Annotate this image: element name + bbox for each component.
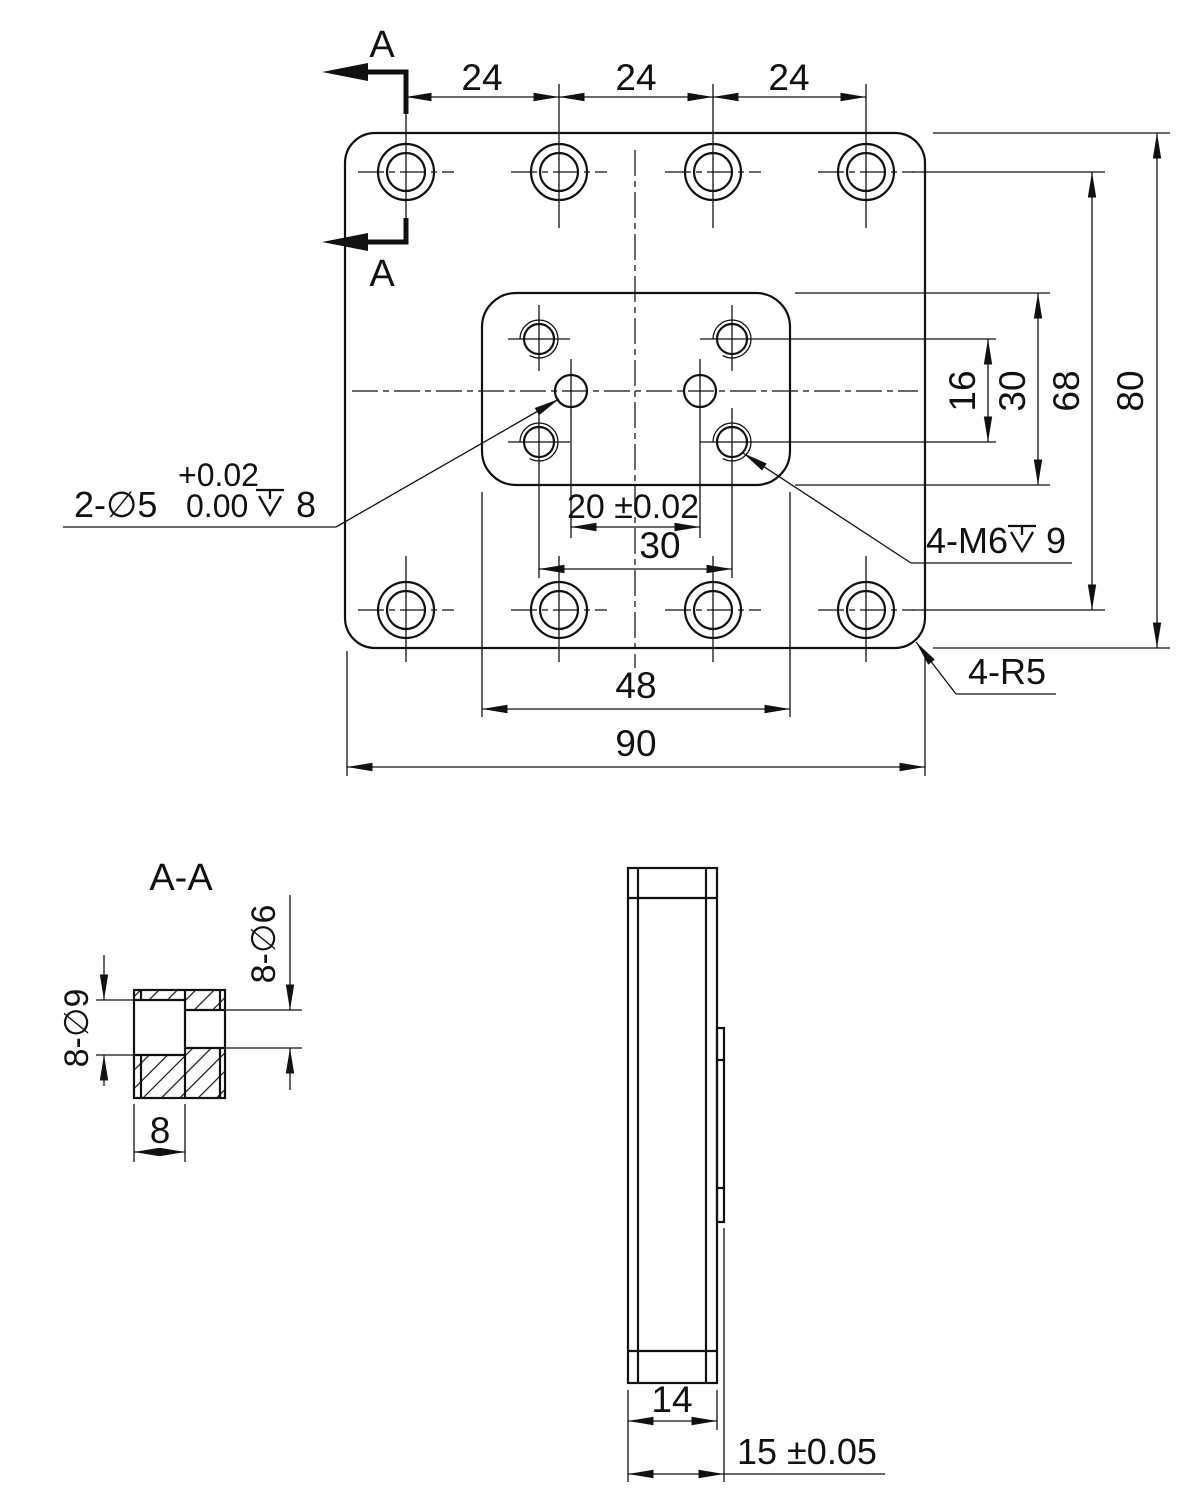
dim-48: 48 <box>615 665 656 706</box>
dim-30-vertical: 30 <box>992 370 1033 411</box>
section-label-bottom: A <box>369 253 395 295</box>
depth-symbol-icon <box>1008 526 1036 551</box>
dim-through-hole: 8-∅6 <box>225 895 302 1090</box>
callout-tap-text: 4-M6 <box>926 520 1008 561</box>
side-view: 14 15 ±0.05 <box>628 868 885 1482</box>
dim-body-thickness: 14 <box>628 1379 717 1482</box>
section-cut-indicator: A A <box>322 24 406 295</box>
dim-20-tol: 20 ±0.02 <box>567 488 699 526</box>
boss-strip <box>717 1028 724 1222</box>
callout-corner-radius: 4-R5 <box>916 642 1056 694</box>
section-label-top: A <box>369 24 395 66</box>
engineering-drawing-page: A A 24 24 24 16 30 68 80 <box>0 0 1200 1511</box>
callout-tap-depth: 9 <box>1046 520 1066 561</box>
drawing-svg: A A 24 24 24 16 30 68 80 <box>0 0 1200 1511</box>
dim-depth-8: 8 <box>150 1110 171 1151</box>
section-arrow-top-icon <box>322 63 368 81</box>
dim-15-tol: 15 ±0.05 <box>737 1431 877 1472</box>
dim-24-2: 24 <box>615 57 656 98</box>
dim-14: 14 <box>651 1379 692 1420</box>
callout-radius-text: 4-R5 <box>968 651 1046 692</box>
callout-dowel-text: 2-∅5 <box>74 484 157 525</box>
dim-16: 16 <box>942 370 983 411</box>
depth-symbol-icon <box>256 490 284 515</box>
callout-dowel-tol-lower: 0.00 <box>186 488 248 524</box>
dim-hole-pitch-top: 24 24 24 <box>406 57 866 98</box>
section-view-a-a: A-A 8-∅9 8-∅6 <box>58 857 302 1162</box>
top-view: A A 24 24 24 16 30 68 80 <box>63 24 1170 776</box>
dim-24-3: 24 <box>768 57 809 98</box>
dim-90: 90 <box>615 723 656 764</box>
dim-30-horizontal: 30 <box>639 525 680 566</box>
tapped-holes-m6 <box>508 305 996 578</box>
side-outline <box>628 868 717 1383</box>
section-title: A-A <box>149 857 213 899</box>
dim-right-stack: 16 30 68 80 <box>795 133 1170 648</box>
dim-total-thickness: 15 ±0.05 <box>628 1228 885 1482</box>
dim-bottom-stack: 20 ±0.02 30 48 90 <box>347 488 925 776</box>
callout-tapped-holes: 4-M6 9 <box>743 453 1072 563</box>
dim-68: 68 <box>1046 370 1087 411</box>
callout-dowel-depth: 8 <box>296 484 316 525</box>
dim-80: 80 <box>1110 370 1151 411</box>
dim-counterbore: 8-∅9 <box>58 955 134 1086</box>
dim-24-1: 24 <box>461 57 502 98</box>
dim-hole-text: 8-∅6 <box>245 905 283 984</box>
counterbore-holes-top-row <box>358 84 914 228</box>
dim-cbore-text: 8-∅9 <box>58 989 96 1068</box>
counterbore-holes-bottom-row <box>358 556 914 662</box>
dim-counterbore-depth: 8 <box>134 1104 185 1162</box>
